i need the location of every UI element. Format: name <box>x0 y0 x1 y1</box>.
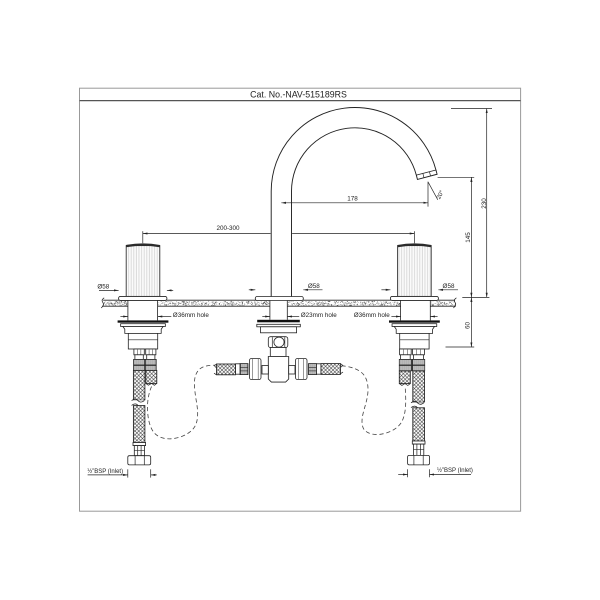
svg-text:145: 145 <box>465 232 472 243</box>
svg-text:Ø58: Ø58 <box>308 283 320 290</box>
svg-text:200-300: 200-300 <box>216 225 240 232</box>
svg-text:½”BSP (Inlet): ½”BSP (Inlet) <box>87 468 123 475</box>
svg-text:Cat. No.-NAV-515189RS: Cat. No.-NAV-515189RS <box>250 89 347 99</box>
svg-text:½”BSP (Inlet): ½”BSP (Inlet) <box>437 467 473 474</box>
svg-text:Ø58: Ø58 <box>443 283 455 290</box>
svg-text:178: 178 <box>347 196 358 203</box>
svg-text:60: 60 <box>465 322 472 330</box>
svg-text:Ø36mm hole: Ø36mm hole <box>173 312 210 319</box>
svg-text:Ø23mm hole: Ø23mm hole <box>301 312 338 319</box>
svg-text:Ø58: Ø58 <box>97 283 109 290</box>
svg-text:Ø36mm hole: Ø36mm hole <box>354 312 391 319</box>
svg-text:230: 230 <box>481 198 488 209</box>
